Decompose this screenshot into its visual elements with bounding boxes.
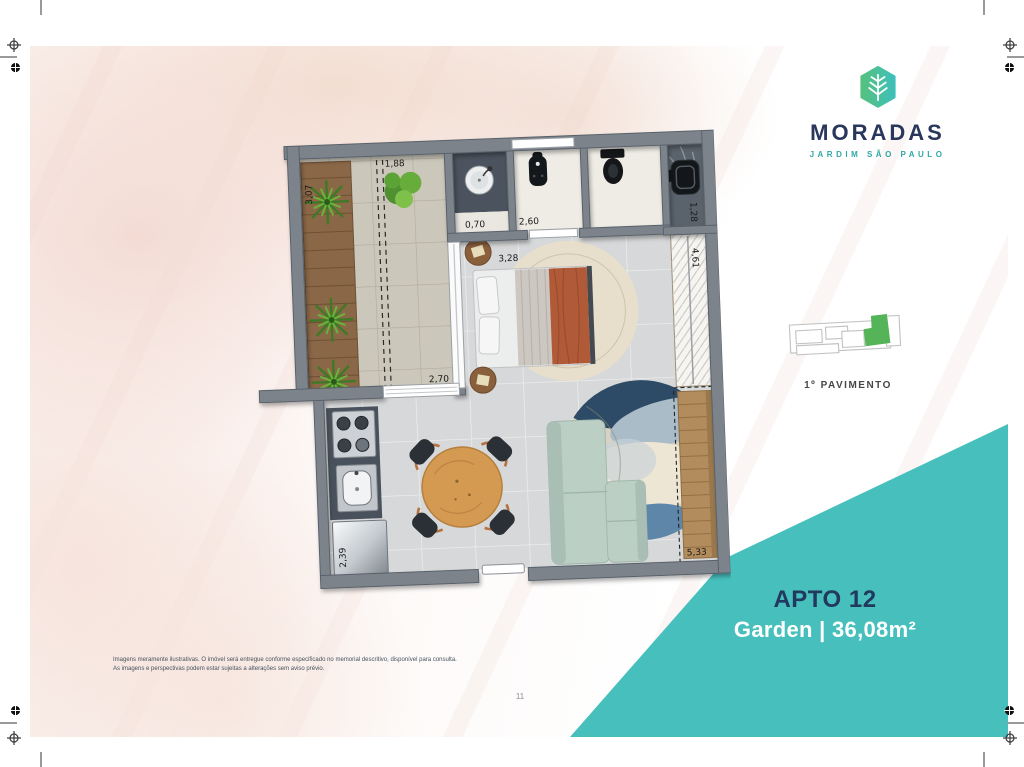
registration-mark-icon <box>1003 731 1017 745</box>
unit-title: APTO 12 <box>690 586 960 614</box>
crop-mark <box>40 0 42 15</box>
brand-subtitle: JARDIM SÃO PAULO <box>795 150 960 159</box>
registration-dot-icon <box>1004 62 1015 73</box>
brochure-page: MORADAS JARDIM SÃO PAULO 1º PAVIMENTO <box>0 0 1024 767</box>
dimension-label: 1,28 <box>687 202 698 223</box>
floor-plan: 1,88 3,07 2,70 0,70 2,60 3,28 1,28 4,61 … <box>243 105 731 603</box>
crop-mark <box>0 56 17 58</box>
nightstand <box>465 239 492 266</box>
crop-mark <box>1007 56 1024 58</box>
bathroom-door <box>529 228 577 238</box>
page-number: 11 <box>470 692 570 701</box>
dimension-label: 0,70 <box>465 220 486 231</box>
registration-mark-icon <box>7 731 21 745</box>
registration-dot-icon <box>10 62 21 73</box>
dimension-label: 3,07 <box>304 184 315 204</box>
key-plan-unit-highlight <box>863 314 891 346</box>
dimension-label: 3,28 <box>498 254 519 265</box>
disclaimer: Imagens meramente ilustrativas. O imóvel… <box>113 656 457 673</box>
palm-plant-icon <box>310 298 354 342</box>
dimension-label: 2,60 <box>519 217 540 228</box>
terrace-glass-door <box>383 383 459 398</box>
terrace-garden <box>296 153 459 404</box>
brand-name: MORADAS <box>795 120 960 146</box>
dimension-label: 1,88 <box>384 159 405 170</box>
toilet-room-floor <box>587 145 663 230</box>
washbasin-icon <box>465 166 494 195</box>
kitchen-sink-icon <box>336 464 378 512</box>
dimension-label: 5,33 <box>687 548 707 559</box>
cooktop-icon <box>332 410 376 458</box>
crop-mark <box>40 752 42 767</box>
registration-dot-icon <box>1004 705 1015 716</box>
registration-mark-icon <box>7 38 21 52</box>
logo-leaf-icon <box>858 66 898 110</box>
floor-label: 1º PAVIMENTO <box>760 380 936 391</box>
entrance-door <box>482 564 524 575</box>
registration-mark-icon <box>1003 38 1017 52</box>
disclaimer-line: As imagens e perspectivas podem estar su… <box>113 665 457 674</box>
nightstand <box>470 367 497 394</box>
crop-mark <box>983 0 985 15</box>
crop-mark <box>983 752 985 767</box>
registration-dot-icon <box>10 705 21 716</box>
brand-logo: MORADAS JARDIM SÃO PAULO <box>795 66 960 159</box>
laundry-tub-icon <box>668 160 700 195</box>
crop-mark <box>1007 722 1024 724</box>
key-plan <box>782 298 918 376</box>
unit-info: APTO 12 Garden | 36,08m² <box>690 586 960 643</box>
unit-area: Garden | 36,08m² <box>690 617 960 643</box>
bathroom-window <box>512 138 574 149</box>
dimension-label: 2,39 <box>338 547 349 568</box>
disclaimer-line: Imagens meramente ilustrativas. O imóvel… <box>113 656 457 665</box>
dimension-label: 4,61 <box>689 248 700 268</box>
dimension-label: 2,70 <box>429 374 450 385</box>
double-bed <box>473 266 596 368</box>
crop-mark <box>0 722 17 724</box>
